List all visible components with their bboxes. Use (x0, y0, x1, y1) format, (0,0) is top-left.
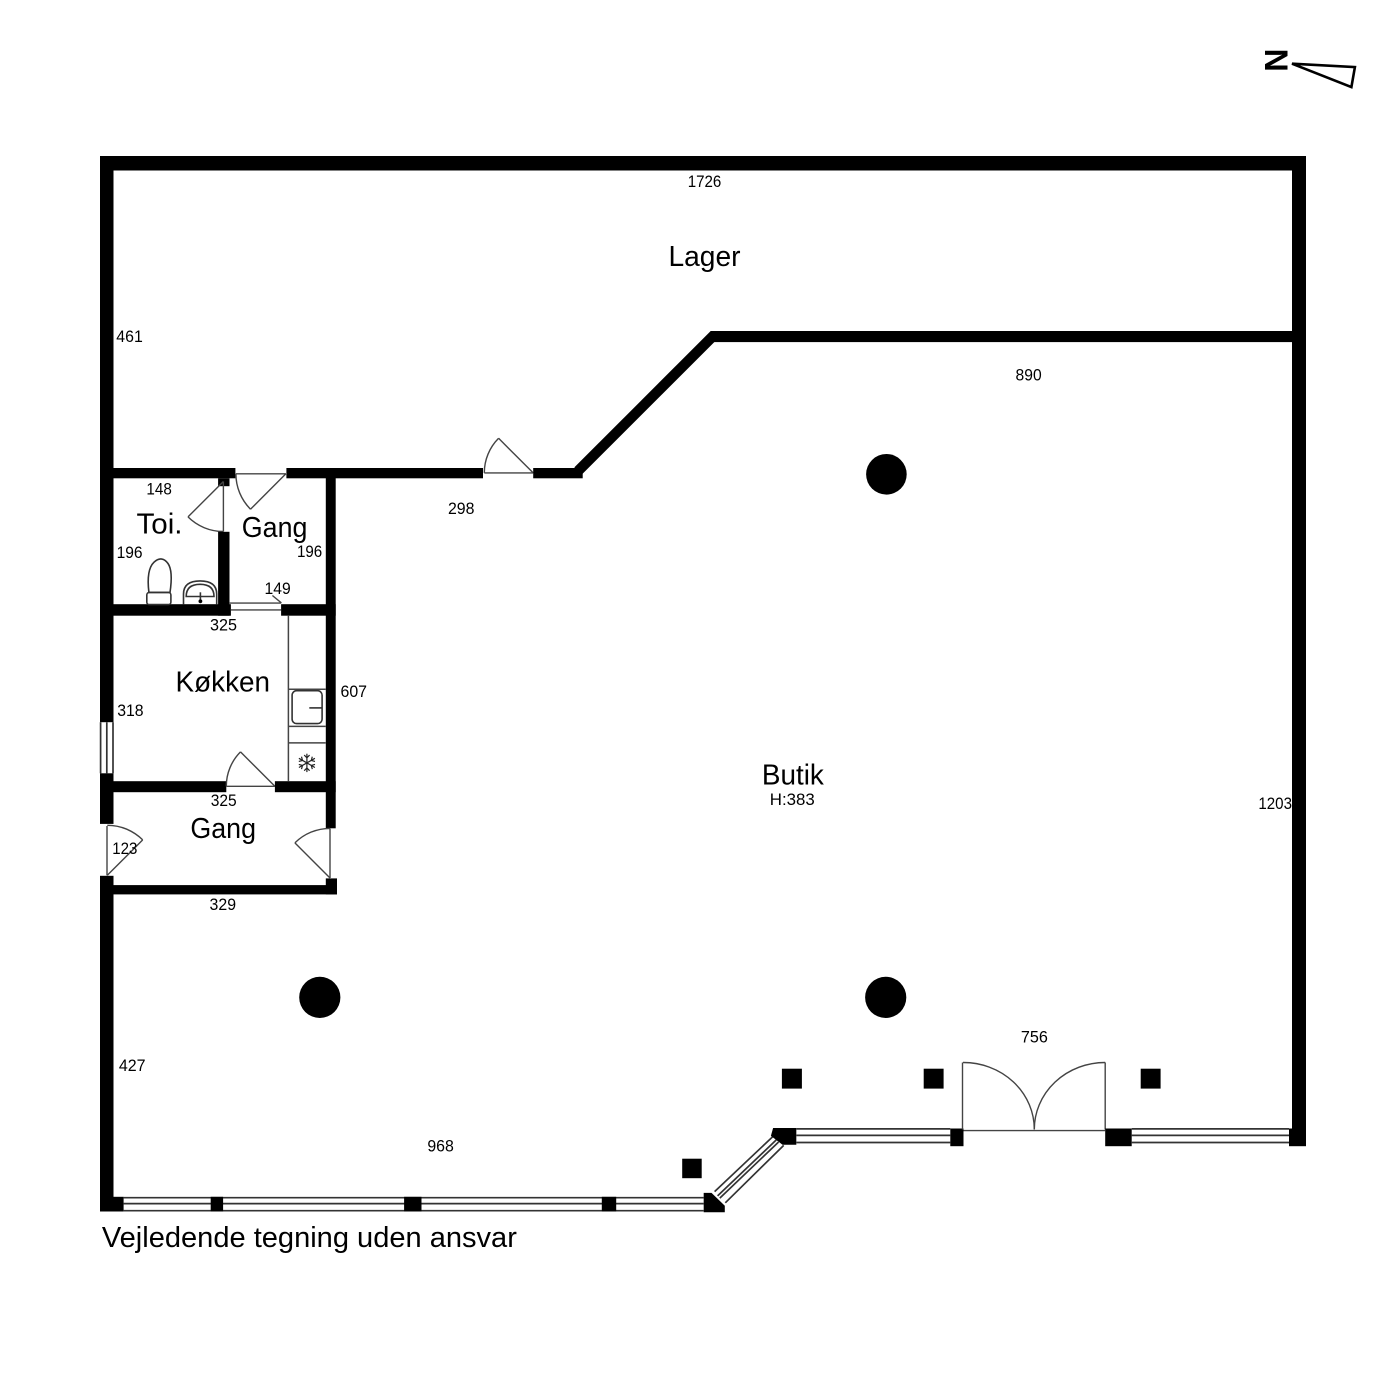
svg-text:Gang: Gang (190, 813, 256, 845)
svg-text:329: 329 (210, 895, 237, 914)
svg-text:427: 427 (119, 1056, 146, 1075)
svg-text:Gang: Gang (242, 512, 308, 544)
svg-text:N: N (1258, 49, 1294, 72)
svg-text:149: 149 (265, 579, 291, 598)
svg-text:1203: 1203 (1258, 794, 1292, 813)
svg-text:890: 890 (1016, 366, 1042, 385)
svg-text:H:383: H:383 (770, 790, 815, 809)
svg-text:298: 298 (448, 499, 475, 518)
svg-text:325: 325 (210, 616, 237, 635)
svg-text:123: 123 (112, 839, 137, 858)
svg-text:Køkken: Køkken (176, 667, 271, 699)
svg-text:756: 756 (1021, 1028, 1048, 1047)
svg-text:Toi.: Toi. (137, 509, 183, 541)
svg-text:461: 461 (116, 327, 143, 346)
svg-text:196: 196 (117, 543, 143, 562)
svg-text:968: 968 (427, 1137, 454, 1156)
svg-text:196: 196 (297, 542, 322, 561)
svg-text:Vejledende tegning uden ansvar: Vejledende tegning uden ansvar (102, 1222, 517, 1254)
svg-text:1726: 1726 (688, 172, 722, 191)
svg-text:318: 318 (117, 701, 143, 720)
svg-text:325: 325 (211, 791, 237, 810)
svg-text:148: 148 (146, 480, 171, 499)
svg-text:Lager: Lager (669, 241, 741, 273)
svg-text:607: 607 (341, 682, 368, 701)
svg-text:Butik: Butik (762, 760, 824, 792)
